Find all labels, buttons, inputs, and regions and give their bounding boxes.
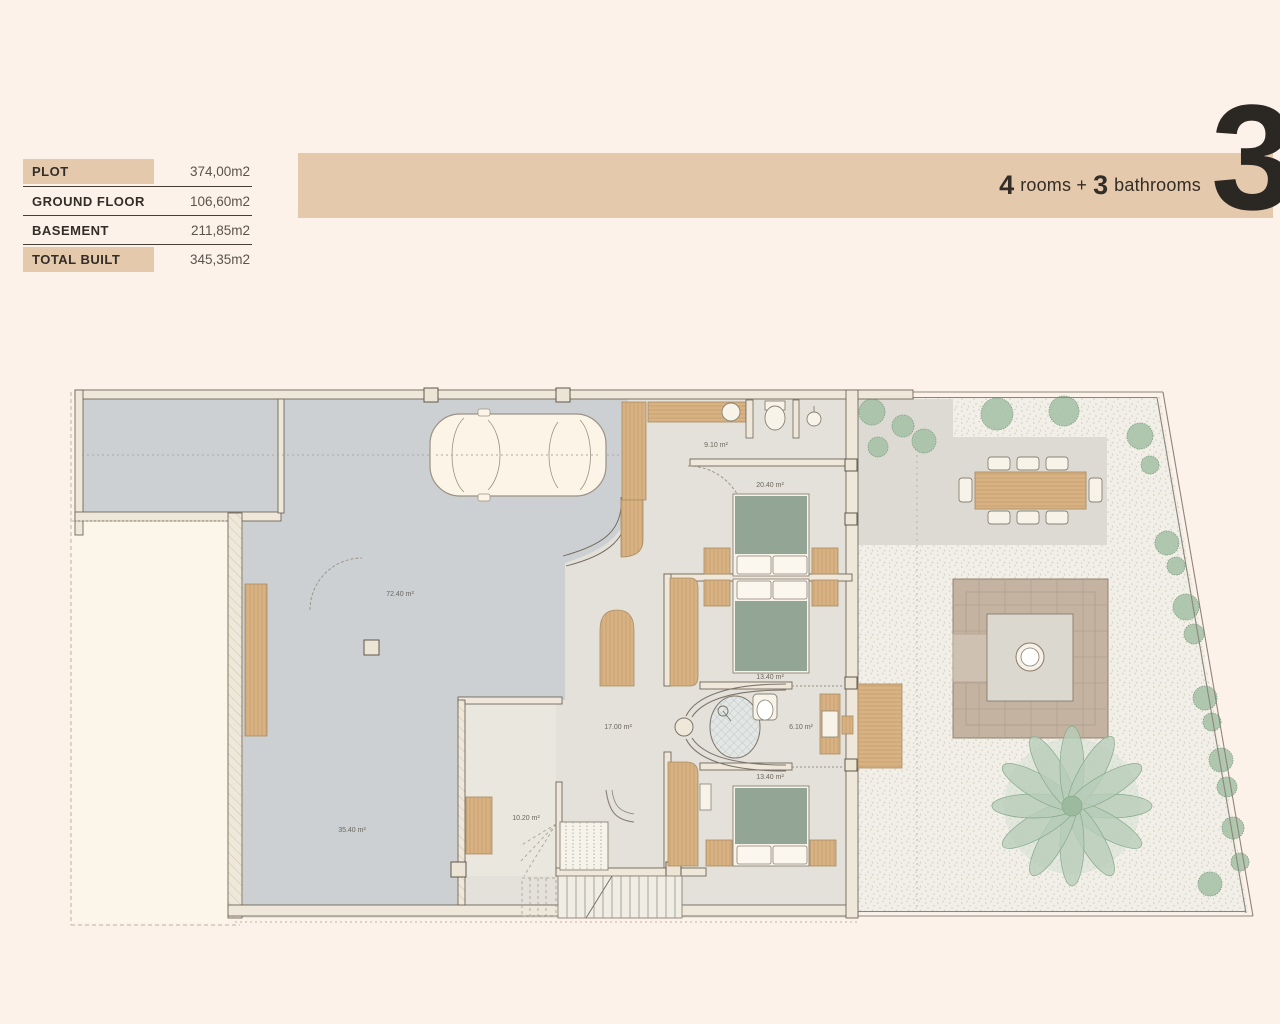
wardrobe xyxy=(670,578,698,686)
dining-chair xyxy=(1089,478,1102,502)
dining-chair xyxy=(1046,457,1068,470)
vanity-basin xyxy=(822,711,838,737)
laundry-sink xyxy=(722,403,740,421)
empty-plot-area xyxy=(71,521,228,923)
shower-floor xyxy=(710,696,760,758)
dining-table xyxy=(975,472,1086,509)
label-bedroom-top: 20.40 m² xyxy=(756,482,784,489)
shower-column xyxy=(675,718,693,736)
nightstand xyxy=(704,548,730,574)
bed-cover xyxy=(735,496,807,554)
label-bedroom-bottom: 13.40 m² xyxy=(756,774,784,781)
pillow xyxy=(773,846,807,864)
dining-chair xyxy=(1017,457,1039,470)
label-hall: 17.00 m² xyxy=(604,724,632,731)
pillow xyxy=(737,846,771,864)
floor-plan: 72.40 m² 9.10 m² 20.40 m² 13.40 m² 6.10 … xyxy=(0,0,1280,1024)
nightstand xyxy=(704,580,730,606)
nightstand xyxy=(810,840,836,866)
toilet xyxy=(757,700,773,720)
exterior-deck xyxy=(858,684,902,768)
garage-cabinet xyxy=(245,584,267,736)
pillow xyxy=(773,556,807,574)
wall-top xyxy=(75,390,913,399)
wardrobe xyxy=(622,402,646,500)
wall-stub xyxy=(793,400,799,438)
door-opening xyxy=(406,512,450,521)
label-garage: 72.40 m² xyxy=(386,591,414,598)
vanity-shelf xyxy=(842,716,853,734)
toilet xyxy=(765,406,785,430)
hall xyxy=(600,610,634,686)
dining-chair xyxy=(988,457,1010,470)
bed-cover xyxy=(735,788,807,844)
dining-chair xyxy=(988,511,1010,524)
wardrobe xyxy=(668,762,698,866)
wall-garage-divider xyxy=(278,399,284,513)
pillow xyxy=(773,581,807,599)
pillow xyxy=(737,581,771,599)
pergola xyxy=(953,579,1108,738)
stair-lower-flight xyxy=(558,876,682,918)
wall-stub xyxy=(746,400,753,438)
wall-storage-top xyxy=(458,697,562,704)
car xyxy=(430,409,606,501)
dining-chair xyxy=(1017,511,1039,524)
wall-left-mid xyxy=(228,513,242,918)
label-basement-room: 35.40 m² xyxy=(338,827,366,834)
nightstand xyxy=(706,840,732,866)
car-mirror xyxy=(478,494,490,501)
pergola-step xyxy=(953,634,988,682)
label-laundry: 9.10 m² xyxy=(704,442,728,449)
sideboard xyxy=(466,797,492,854)
dining-chair xyxy=(959,478,972,502)
wall-bathroom-top xyxy=(700,682,792,689)
label-storage: 10.20 m² xyxy=(512,815,540,822)
hand-sink xyxy=(807,412,821,426)
label-bedroom-middle: 13.40 m² xyxy=(756,674,784,681)
car-mirror xyxy=(478,409,490,416)
pillow xyxy=(737,556,771,574)
wall-corridor xyxy=(75,512,281,521)
wall-bottom xyxy=(228,905,858,916)
shelf xyxy=(700,784,711,810)
wall-laundry-bedroom xyxy=(690,459,852,466)
wardrobe-curved xyxy=(621,500,643,557)
nightstand xyxy=(812,548,838,574)
bed-cover xyxy=(735,601,807,671)
dining-chair xyxy=(1046,511,1068,524)
nightstand xyxy=(812,580,838,606)
label-bathroom: 6.10 m² xyxy=(789,724,813,731)
arched-console xyxy=(600,610,634,686)
